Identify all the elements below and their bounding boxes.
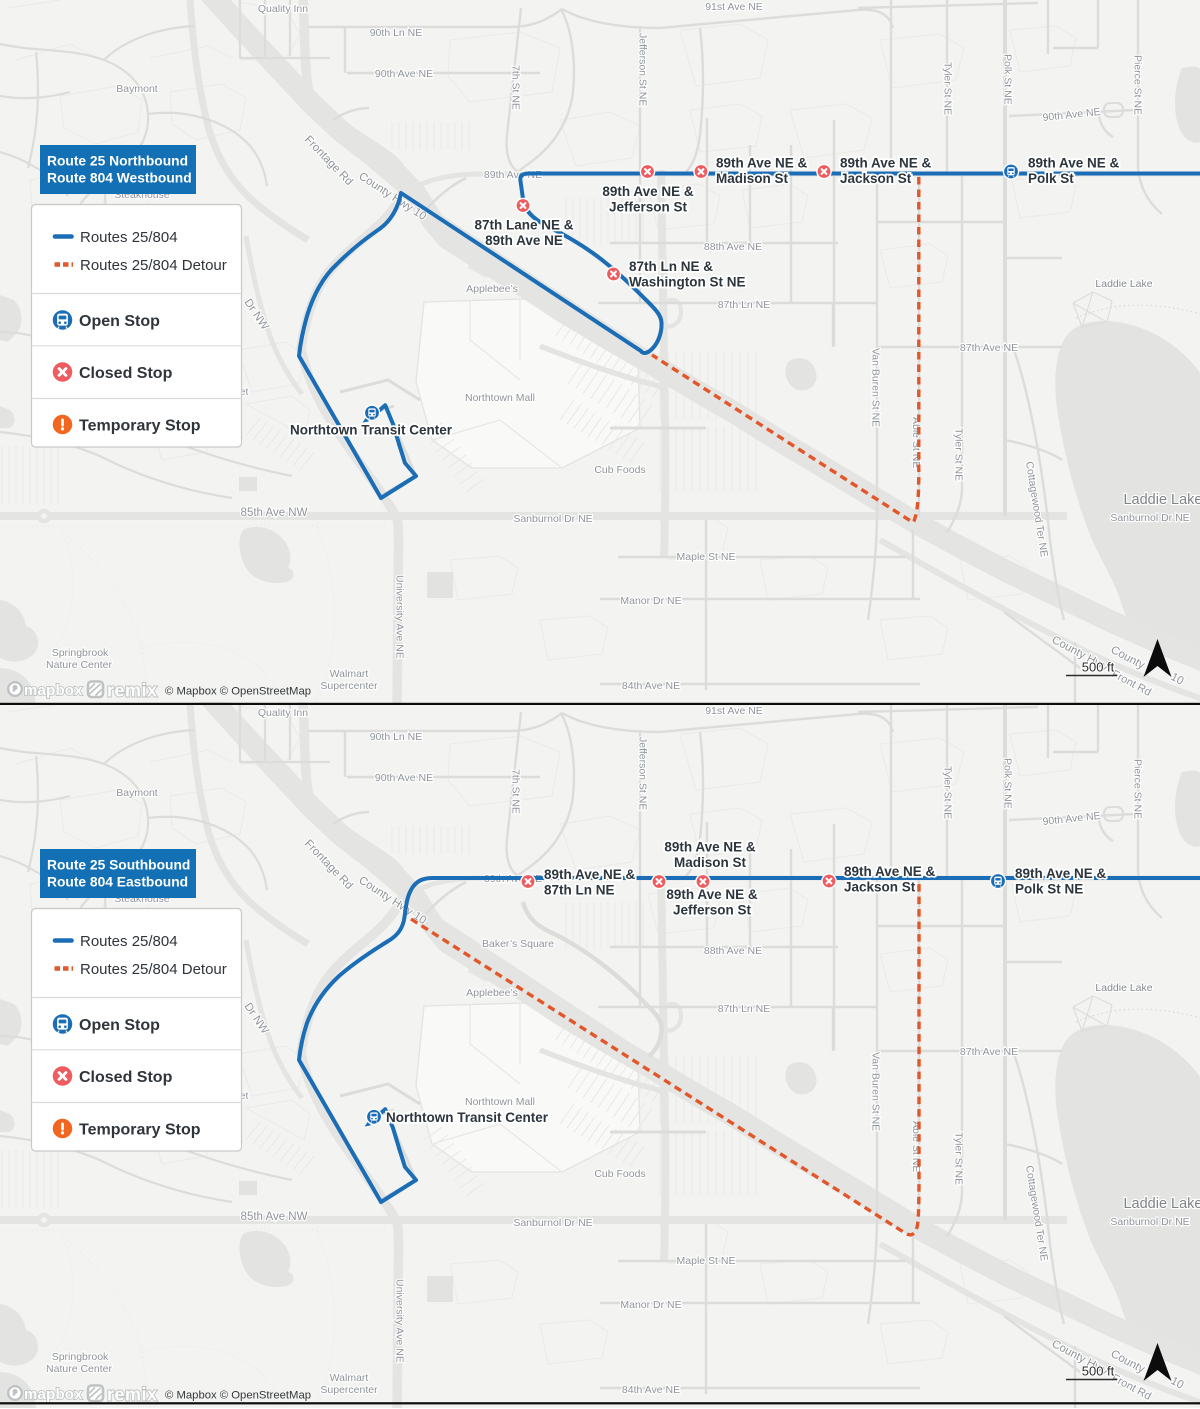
svg-text:89th Ave NE &: 89th Ave NE & [666,887,758,902]
svg-text:89th Ave NE &: 89th Ave NE & [1015,866,1107,881]
svg-text:89th Ave NE &: 89th Ave NE & [602,184,694,199]
svg-text:89th Ave NE &: 89th Ave NE & [844,864,936,879]
svg-text:Madison St: Madison St [674,855,747,870]
svg-text:89th Ave NE &: 89th Ave NE & [840,156,932,171]
svg-text:87th Ln NE: 87th Ln NE [544,883,615,898]
svg-text:Baker’s Square: Baker’s Square [482,938,554,950]
svg-text:Jefferson St: Jefferson St [673,903,752,918]
svg-text:89th Ave NE &: 89th Ave NE & [544,867,636,882]
svg-text:Jefferson St: Jefferson St [609,200,688,215]
svg-text:Madison St: Madison St [716,171,789,186]
svg-text:Route 25 Northbound: Route 25 Northbound [47,154,188,169]
svg-text:89th Ave NE: 89th Ave NE [485,233,563,248]
svg-text:Route 804 Eastbound: Route 804 Eastbound [47,875,188,890]
svg-text:89th Ave NE &: 89th Ave NE & [1028,156,1120,171]
svg-text:Route 804 Westbound: Route 804 Westbound [47,171,192,186]
svg-text:Northtown Transit Center: Northtown Transit Center [386,1110,549,1125]
svg-text:87th Ln NE &: 87th Ln NE & [629,259,713,274]
svg-text:Northtown Transit Center: Northtown Transit Center [290,423,453,438]
svg-text:89th Ave NE &: 89th Ave NE & [716,156,808,171]
svg-text:Washington St NE: Washington St NE [629,275,746,290]
svg-text:Polk St NE: Polk St NE [1015,882,1083,897]
svg-text:Polk St: Polk St [1028,171,1074,186]
svg-text:89th Ave NE &: 89th Ave NE & [664,840,756,855]
svg-text:87th Lane NE &: 87th Lane NE & [474,218,573,233]
svg-text:Route 25 Southbound: Route 25 Southbound [47,858,190,873]
svg-text:Jackson St: Jackson St [840,171,912,186]
svg-text:Jackson St: Jackson St [844,880,916,895]
